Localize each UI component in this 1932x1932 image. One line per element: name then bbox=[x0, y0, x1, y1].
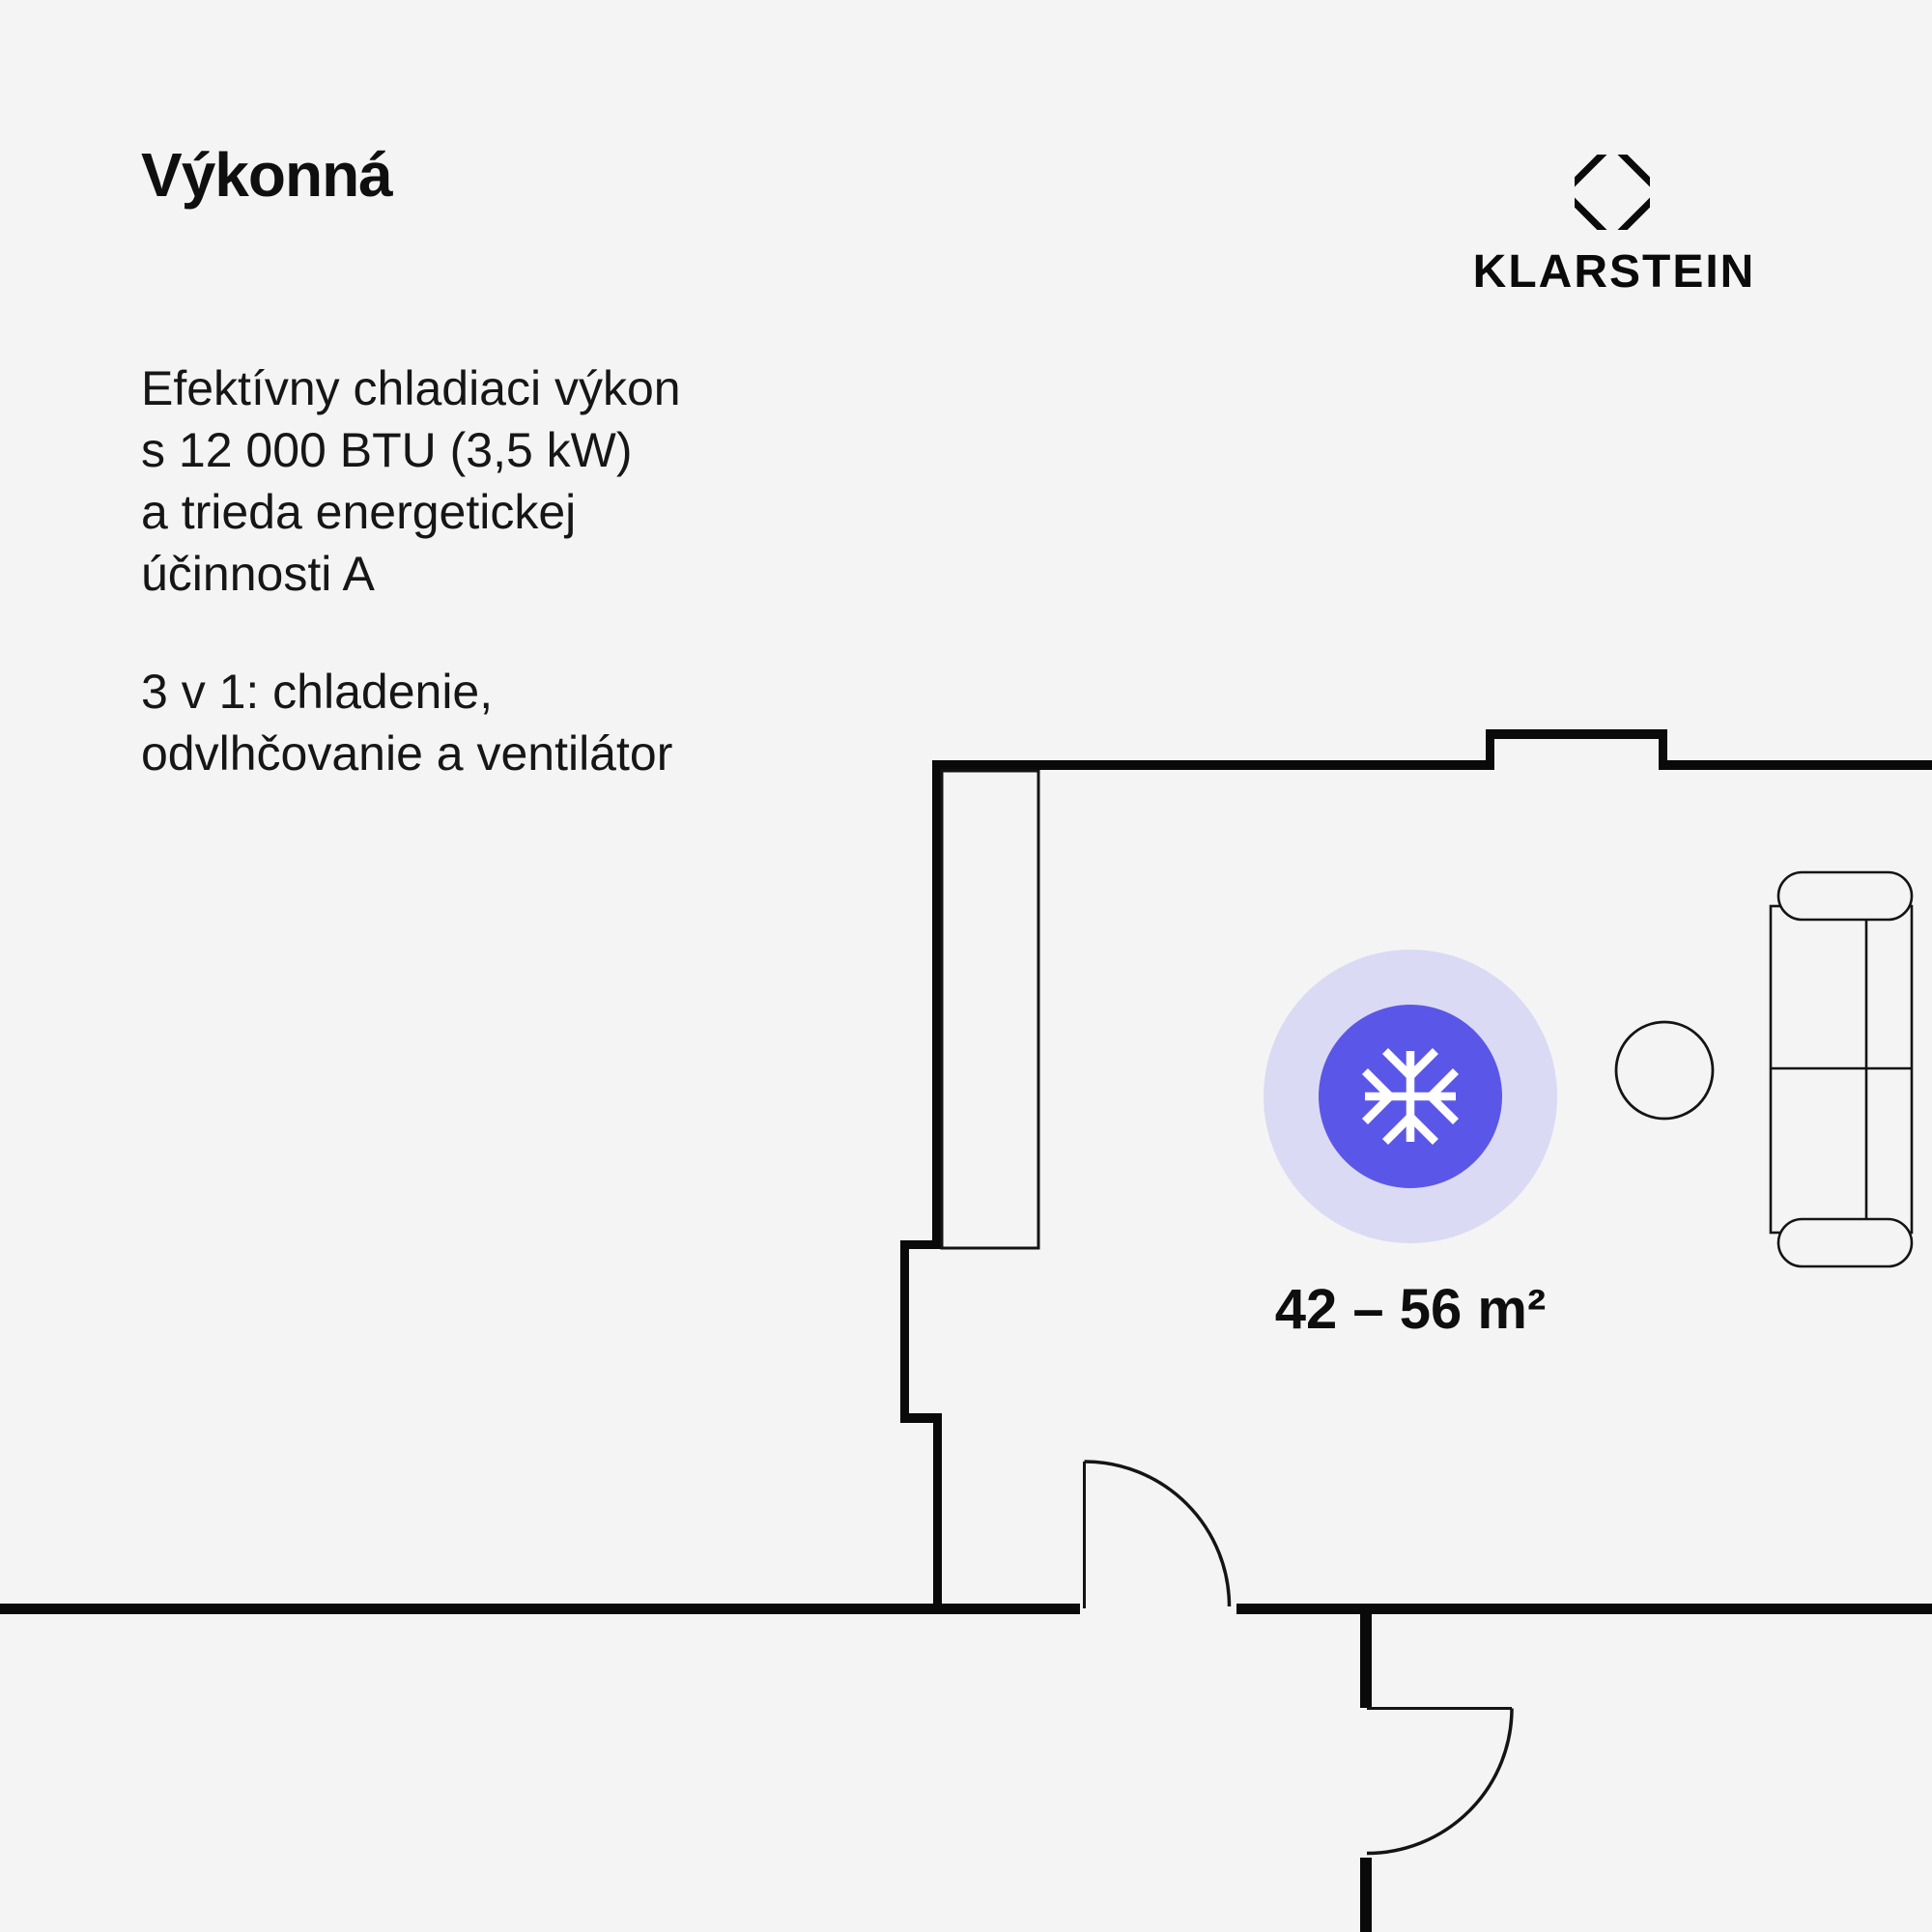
sofa-armrest-top bbox=[1778, 872, 1912, 920]
door-swing-arc bbox=[1085, 1462, 1230, 1606]
sofa bbox=[1771, 872, 1912, 1266]
closet bbox=[942, 771, 1038, 1248]
floorplan-linework bbox=[0, 0, 1932, 1932]
sofa-armrest-bottom bbox=[1778, 1219, 1912, 1266]
door-swing-arc bbox=[1367, 1709, 1512, 1854]
round-table bbox=[1616, 1022, 1713, 1119]
cooling-badge bbox=[1246, 932, 1575, 1261]
area-range-label: 42 – 56 m² bbox=[1275, 1277, 1547, 1342]
